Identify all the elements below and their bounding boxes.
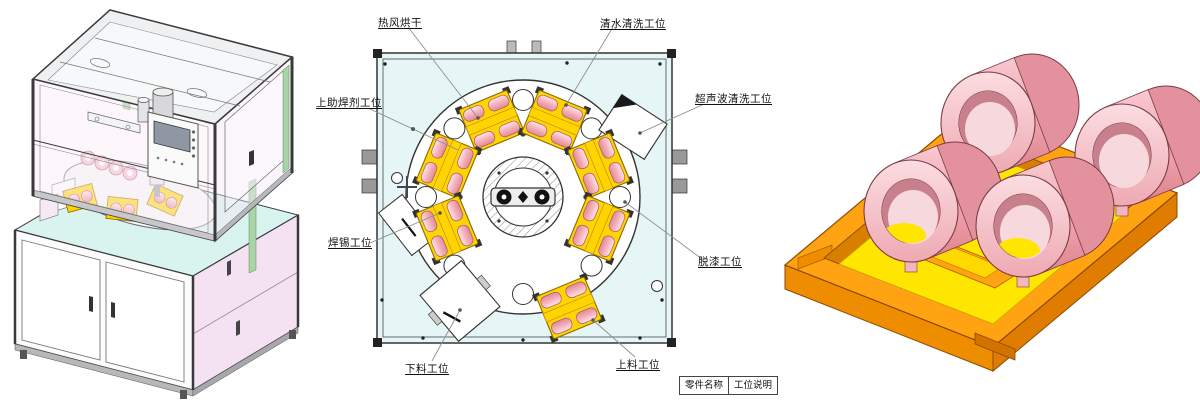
side-handle [227,260,231,276]
machine-3d-render [0,0,320,400]
callout-soldering: 焊锡工位 [328,235,372,250]
cabinet-door-right [106,262,184,382]
tray-3d-render-panel [780,0,1200,400]
title-block: 零件名称 工位说明 [679,376,778,395]
door-handle [111,302,115,318]
screenshot-root: 热风烘干 清水清洗工位 上助焊剂工位 超声波清洗工位 焊锡工位 脱漆工位 下料工… [0,0,1200,400]
hmi-button [165,159,168,162]
callout-hot-air-drying: 热风烘干 [378,15,422,30]
coil-tray-render [780,0,1200,400]
hmi-button [157,157,160,160]
callout-flux-applying: 上助焊剂工位 [316,95,382,110]
callout-loading: 上料工位 [616,357,660,372]
hmi-button [192,130,195,133]
hmi-button [181,163,184,166]
station-layout-drawing-panel: 热风烘干 清水清洗工位 上助焊剂工位 超声波清洗工位 焊锡工位 脱漆工位 下料工… [310,0,780,400]
side-handle [236,320,240,336]
title-block-part-name: 零件名称 [680,377,729,394]
green-trim [283,65,289,173]
door-handle [89,296,93,312]
rotary-table-drawing [310,0,780,400]
callout-water-cleaning: 清水清洗工位 [600,16,666,31]
door-handle [249,150,254,166]
cabinet-door-left [22,240,100,360]
hmi-button [192,138,195,141]
callout-unloading: 下料工位 [405,361,449,376]
center-hub [483,157,563,237]
title-block-station-desc: 工位说明 [729,377,777,394]
hmi-button [192,146,195,149]
hmi-button [192,154,195,157]
machine-3d-render-panel [0,0,320,400]
hmi-button [173,161,176,164]
callout-paint-stripping: 脱漆工位 [698,254,742,269]
callout-ultrasonic-cleaning: 超声波清洗工位 [695,91,772,106]
hmi-panel [148,112,198,188]
